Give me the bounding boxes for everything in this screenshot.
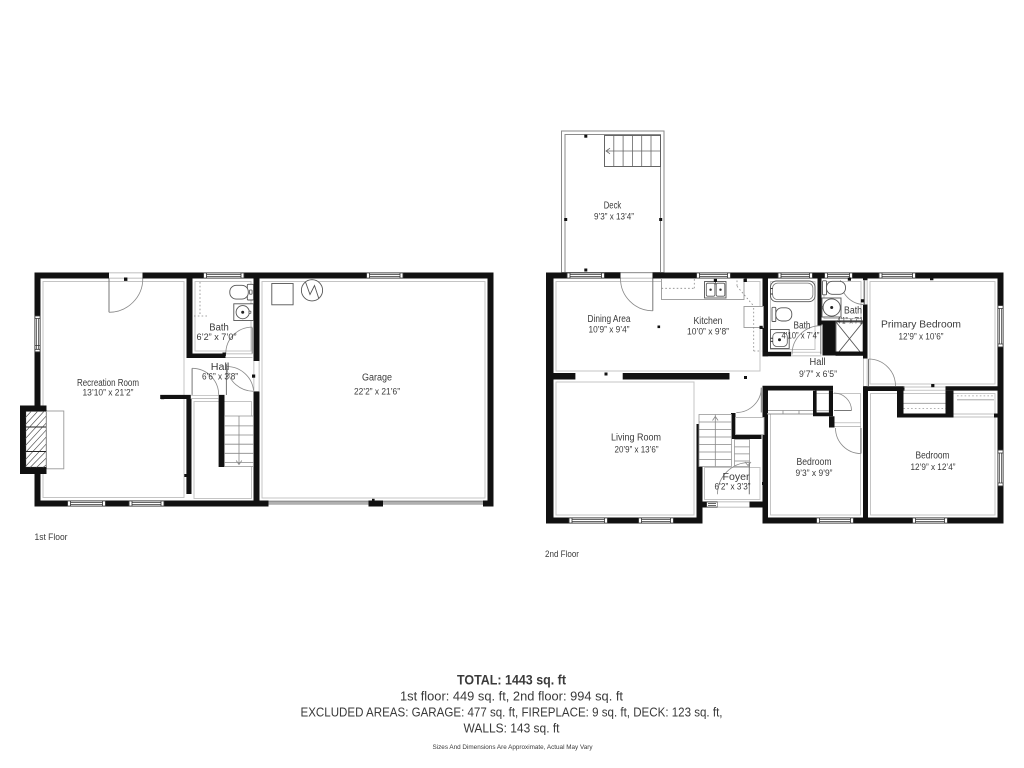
svg-text:20’9” x 13’6”: 20’9” x 13’6” (615, 445, 659, 455)
svg-text:4’10” x 7’4”: 4’10” x 7’4” (782, 330, 820, 340)
svg-text:Living Room: Living Room (611, 433, 661, 444)
svg-text:Hall: Hall (810, 357, 826, 368)
svg-text:Primary Bedroom: Primary Bedroom (881, 319, 961, 330)
svg-text:6’2” x 3’3”: 6’2” x 3’3” (715, 481, 751, 491)
svg-text:EXCLUDED AREAS: GARAGE: 477 sq: EXCLUDED AREAS: GARAGE: 477 sq. ft, FIRE… (301, 705, 723, 720)
svg-text:WALLS: 143 sq. ft: WALLS: 143 sq. ft (464, 721, 560, 736)
svg-text:Garage: Garage (362, 373, 392, 384)
svg-text:10’9” x 9’4”: 10’9” x 9’4” (589, 325, 630, 335)
svg-text:12’9” x 12’4”: 12’9” x 12’4” (911, 462, 956, 472)
svg-text:9’3” x 13’4”: 9’3” x 13’4” (594, 212, 634, 222)
svg-text:Bedroom: Bedroom (916, 450, 950, 461)
svg-text:Dining Area: Dining Area (588, 314, 631, 325)
svg-text:Sizes And Dimensions Are Appro: Sizes And Dimensions Are Approximate, Ac… (433, 744, 594, 751)
svg-text:Deck: Deck (604, 201, 622, 212)
svg-text:9’3” x 9’9”: 9’3” x 9’9” (796, 468, 833, 478)
svg-text:TOTAL: 1443 sq. ft: TOTAL: 1443 sq. ft (457, 673, 566, 688)
svg-text:1st Floor: 1st Floor (35, 532, 68, 542)
svg-text:10’0” x 9’8”: 10’0” x 9’8” (687, 327, 729, 337)
svg-text:1st floor: 449 sq. ft, 2nd flo: 1st floor: 449 sq. ft, 2nd floor: 994 sq… (400, 688, 623, 703)
svg-text:9’7” x 6’5”: 9’7” x 6’5” (799, 369, 837, 379)
svg-text:6’2” x 7’0”: 6’2” x 7’0” (197, 332, 237, 342)
svg-text:12’9” x 10’6”: 12’9” x 10’6” (899, 331, 944, 341)
svg-text:6’6” x 3’8”: 6’6” x 3’8” (202, 372, 238, 382)
svg-text:22’2” x 21’6”: 22’2” x 21’6” (354, 386, 400, 396)
svg-text:13’10” x 21’2”: 13’10” x 21’2” (83, 388, 134, 398)
svg-text:2nd Floor: 2nd Floor (545, 549, 579, 559)
svg-text:4’1” x 7’1: 4’1” x 7’1 (837, 315, 863, 325)
svg-text:Bedroom: Bedroom (797, 457, 832, 468)
svg-text:Kitchen: Kitchen (694, 316, 723, 327)
